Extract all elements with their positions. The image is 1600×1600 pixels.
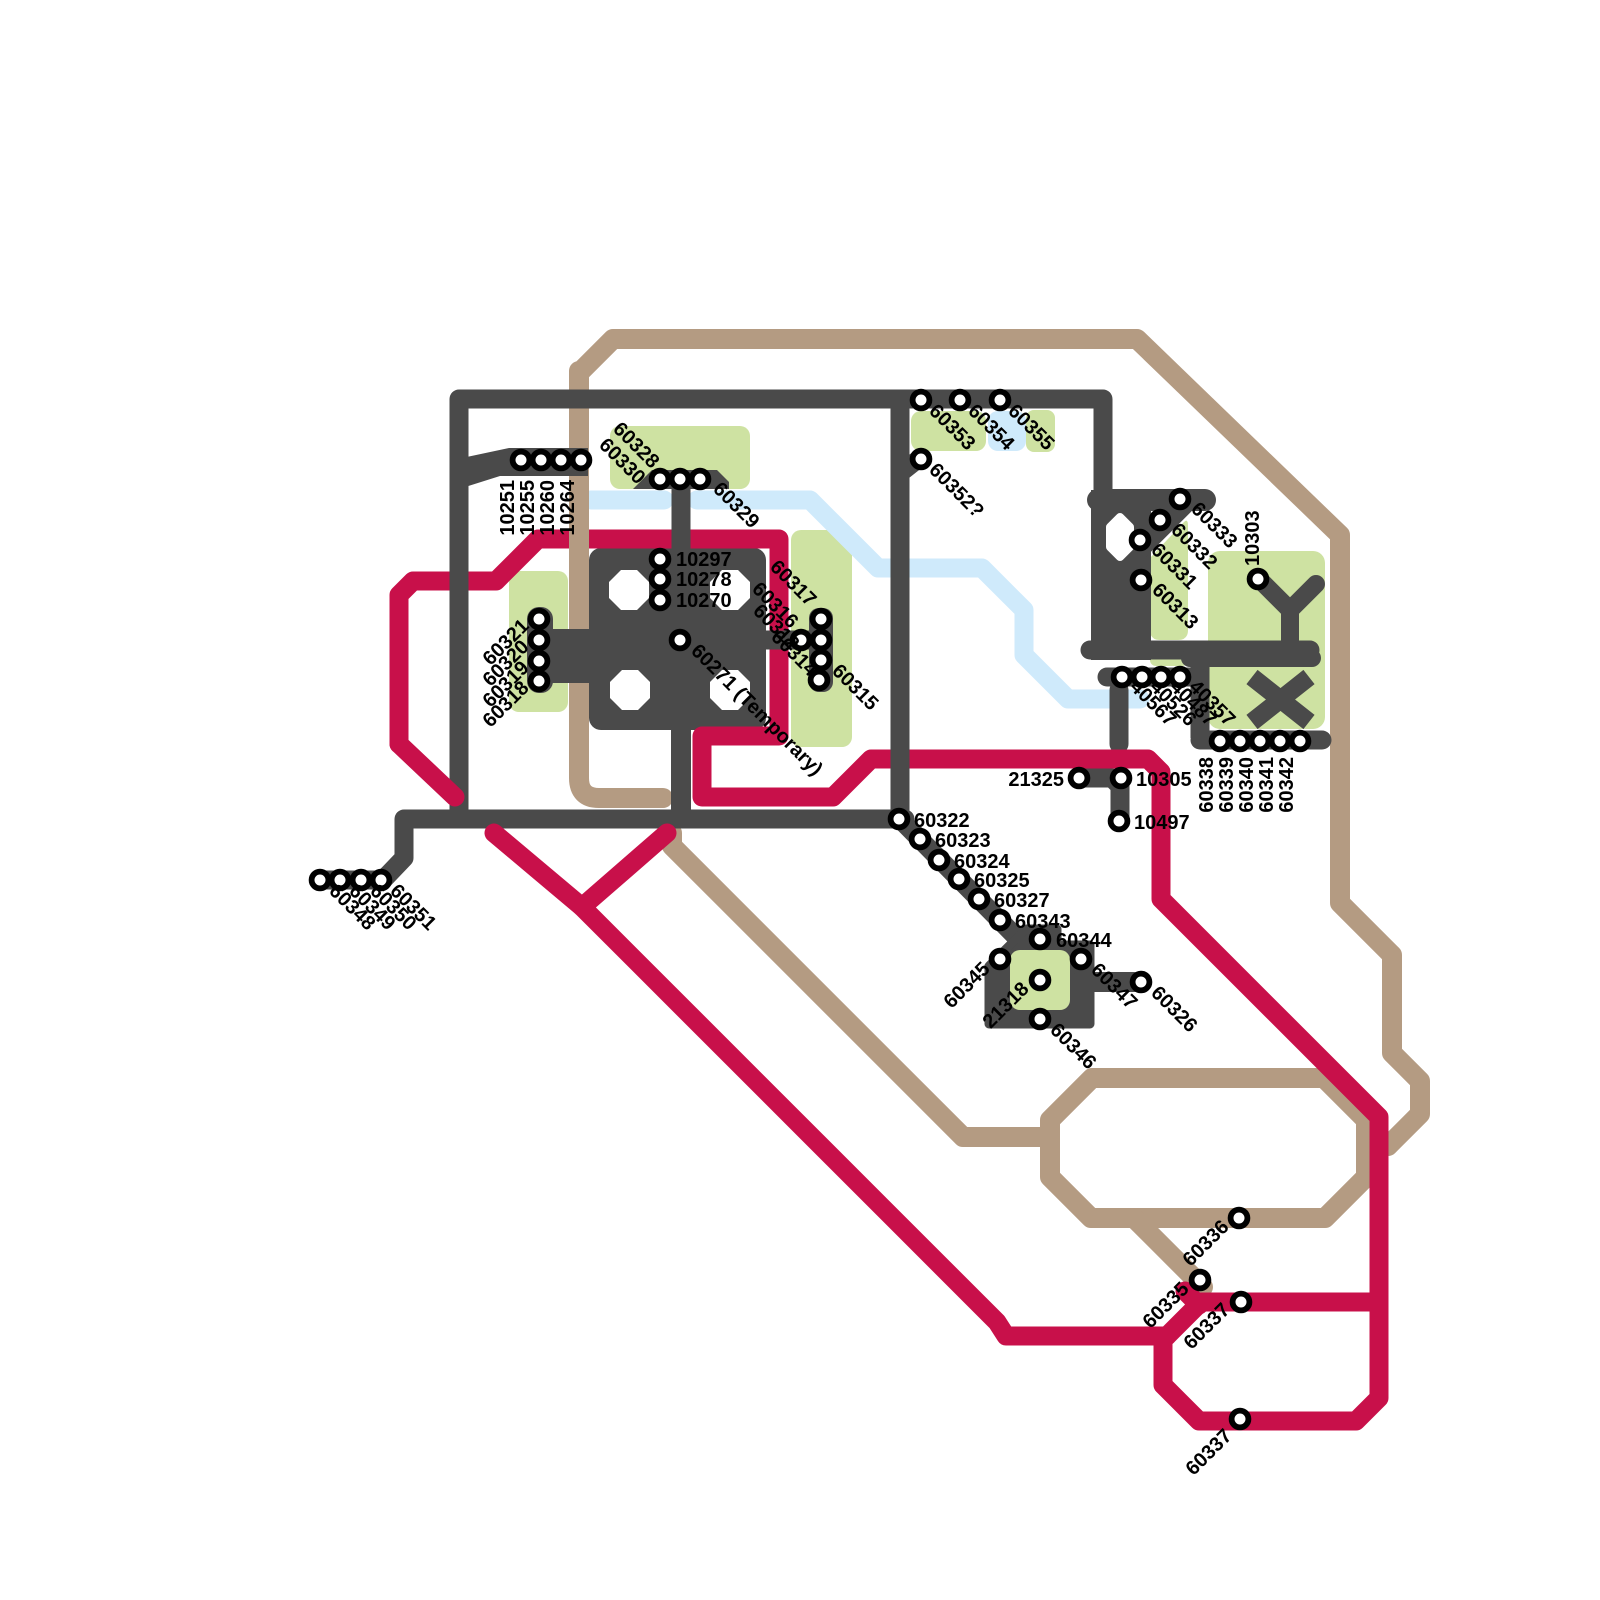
svg-text:60344: 60344 <box>1056 930 1112 952</box>
svg-text:60341: 60341 <box>1256 757 1278 813</box>
svg-text:60322: 60322 <box>914 810 970 832</box>
svg-text:10497: 10497 <box>1134 812 1190 834</box>
svg-text:10303: 10303 <box>1242 510 1264 566</box>
svg-text:10260: 10260 <box>537 480 559 536</box>
svg-text:10251: 10251 <box>497 480 519 536</box>
svg-text:10278: 10278 <box>676 569 732 591</box>
svg-text:21325: 21325 <box>1008 769 1064 791</box>
svg-text:60325: 60325 <box>974 870 1030 892</box>
svg-text:10255: 10255 <box>517 480 539 536</box>
svg-text:60338: 60338 <box>1196 757 1218 813</box>
svg-text:60339: 60339 <box>1216 757 1238 813</box>
svg-text:10297: 10297 <box>676 549 732 571</box>
svg-text:10270: 10270 <box>676 590 732 612</box>
svg-text:10264: 10264 <box>557 479 579 535</box>
svg-text:60323: 60323 <box>935 830 991 852</box>
svg-text:60340: 60340 <box>1236 757 1258 813</box>
svg-text:60342: 60342 <box>1276 757 1298 813</box>
svg-text:10305: 10305 <box>1136 769 1192 791</box>
svg-text:60327: 60327 <box>994 890 1050 912</box>
